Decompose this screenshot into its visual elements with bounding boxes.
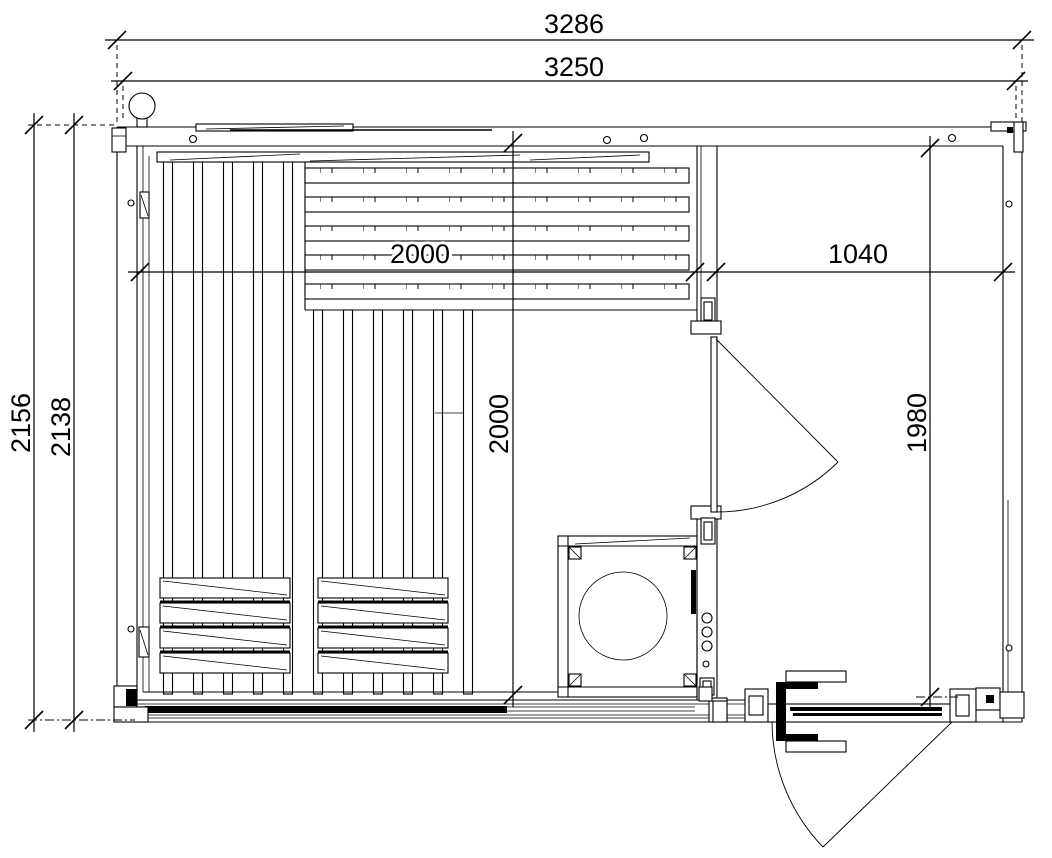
bench-steps-right — [318, 578, 448, 673]
dim-dressing-width-label: 1040 — [828, 239, 888, 269]
dim-frame-width-label: 3250 — [544, 52, 604, 82]
interior-door-leaf — [711, 337, 717, 512]
vent-holes — [702, 613, 712, 667]
wall-blocks — [139, 192, 149, 657]
exterior-door — [699, 671, 1024, 847]
glass-front-panel — [145, 706, 507, 713]
dim-frame-depth-label: 2138 — [46, 397, 76, 457]
dim-overall-depth-label: 2156 — [6, 393, 36, 453]
corner-bracket-bottom-right — [976, 688, 1024, 718]
interior-door-swing-arc — [717, 462, 838, 512]
upper-bench — [157, 152, 697, 310]
dim-dressing-depth-label: 1980 — [902, 393, 932, 453]
sauna-floor-plan: 3286 3250 2156 2138 2000 1040 2000 1 — [0, 0, 1052, 858]
dim-sauna-depth-label: 2000 — [484, 394, 514, 454]
corner-bracket-top-left — [112, 128, 126, 152]
dim-overall-width-label: 3286 — [544, 9, 604, 39]
corner-bracket-top-right — [991, 122, 1026, 152]
dimension-top: 3286 3250 — [105, 9, 1034, 124]
vent-knob — [129, 93, 155, 127]
stove — [558, 536, 697, 697]
drawing-canvas: 3286 3250 2156 2138 2000 1040 2000 1 — [0, 0, 1052, 858]
dim-sauna-width-label: 2000 — [390, 239, 450, 269]
dimension-left: 2156 2138 — [6, 113, 135, 732]
interior-door — [711, 337, 838, 512]
bench-steps-left — [160, 578, 290, 673]
